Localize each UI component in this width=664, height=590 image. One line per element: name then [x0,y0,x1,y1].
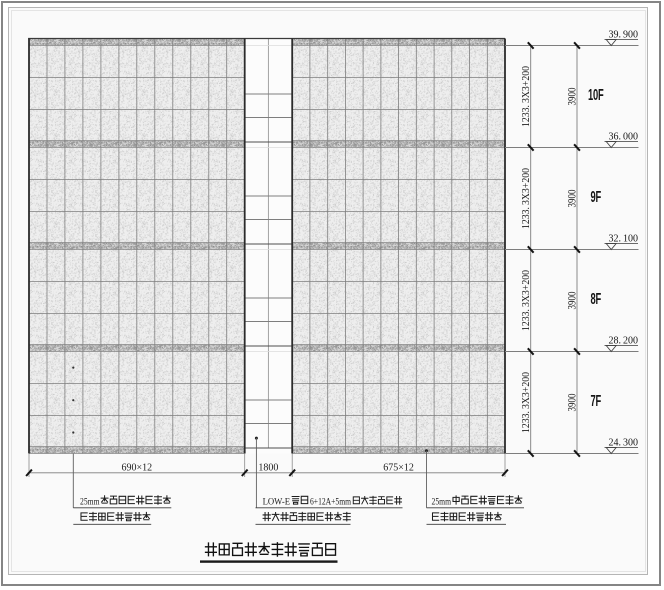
svg-text:675×12: 675×12 [383,462,414,473]
svg-text:690×12: 690×12 [121,462,152,473]
svg-text:8F: 8F [591,290,602,308]
svg-text:24. 300: 24. 300 [608,437,638,448]
svg-text:10F: 10F [588,86,604,104]
svg-text:3900: 3900 [567,292,579,310]
svg-text:1233. 3X3+200: 1233. 3X3+200 [521,66,532,127]
svg-text:1233. 3X3+200: 1233. 3X3+200 [521,168,532,229]
svg-text:3900: 3900 [567,88,579,106]
svg-text:1233. 3X3+200: 1233. 3X3+200 [521,270,532,331]
svg-text:7F: 7F [591,392,602,410]
svg-text:25mm: 25mm [432,497,452,507]
svg-text:3900: 3900 [567,190,579,208]
svg-text:28. 200: 28. 200 [608,335,638,346]
svg-text:32. 100: 32. 100 [608,233,638,244]
svg-text:9F: 9F [591,188,602,206]
svg-text:36. 000: 36. 000 [608,131,638,142]
svg-text:1233. 3X3+200: 1233. 3X3+200 [521,372,532,433]
svg-text:25mm: 25mm [80,497,100,507]
svg-text:1800: 1800 [258,462,278,473]
svg-text:LOW-E: LOW-E [263,497,291,507]
svg-text:6+12A+5mm: 6+12A+5mm [310,497,351,507]
svg-text:39. 900: 39. 900 [608,29,638,40]
svg-text:3900: 3900 [567,394,579,412]
